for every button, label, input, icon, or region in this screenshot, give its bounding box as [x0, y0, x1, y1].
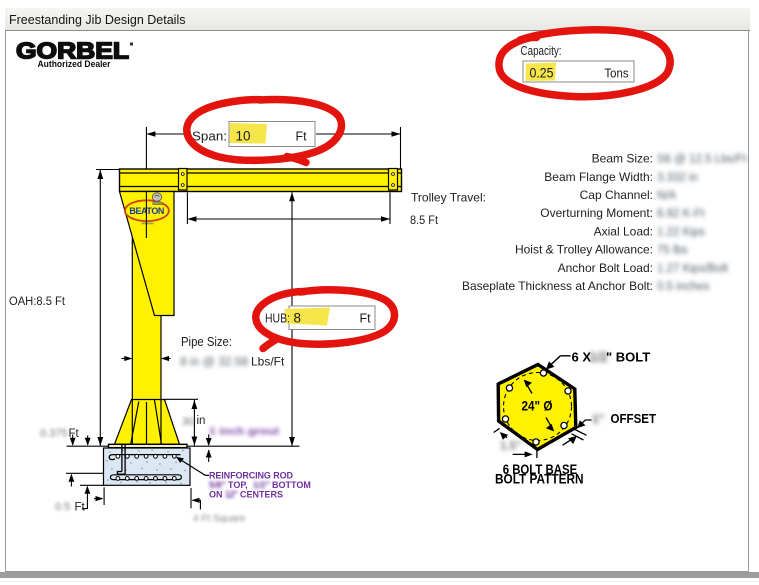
svg-text:OAH:8.5 Ft: OAH:8.5 Ft: [9, 296, 66, 308]
svg-text:24" Ø: 24" Ø: [522, 399, 553, 414]
svg-text:Pipe Size:: Pipe Size:: [181, 335, 232, 349]
svg-text:Anchor Bolt Load:: Anchor Bolt Load:: [558, 261, 653, 275]
svg-text:Beam Flange Width:: Beam Flange Width:: [544, 170, 653, 184]
svg-text:6.92 K-Ft: 6.92 K-Ft: [657, 208, 705, 220]
svg-text:Lbs/Ft: Lbs/Ft: [251, 355, 285, 369]
svg-text:Ft: Ft: [296, 130, 308, 144]
svg-text:HUB:: HUB:: [265, 312, 290, 326]
svg-text:0.375: 0.375: [40, 428, 68, 440]
svg-text:Ft: Ft: [75, 502, 86, 514]
svg-text:8.5 Ft: 8.5 Ft: [410, 213, 439, 227]
svg-text:Axial Load:: Axial Load:: [594, 225, 653, 239]
svg-text:BOTTOM: BOTTOM: [272, 480, 311, 490]
svg-text:Tons: Tons: [605, 67, 629, 81]
svg-text:4 Ft Square: 4 Ft Square: [193, 514, 246, 525]
svg-text:TOP,: TOP,: [228, 480, 248, 490]
svg-text:1/2": 1/2": [253, 480, 270, 490]
svg-text:1 inch grout: 1 inch grout: [209, 427, 280, 438]
svg-text:1": 1": [592, 412, 604, 426]
svg-text:Beam Size:: Beam Size:: [592, 152, 653, 166]
svg-text:REINFORCING ROD: REINFORCING ROD: [209, 471, 294, 481]
svg-text:BOLT PATTERN: BOLT PATTERN: [495, 472, 584, 487]
svg-text:8 in @ 32.58: 8 in @ 32.58: [180, 355, 249, 369]
svg-text:N/A: N/A: [657, 190, 677, 202]
svg-text:8: 8: [294, 311, 302, 326]
svg-text:in: in: [197, 415, 206, 427]
svg-text:S6 @ 12.5 Lbs/Ft: S6 @ 12.5 Lbs/Ft: [657, 154, 747, 166]
svg-text:1.27 Kips/Bolt: 1.27 Kips/Bolt: [657, 263, 729, 275]
svg-text:Baseplate Thickness at Anchor: Baseplate Thickness at Anchor Bolt:: [462, 279, 653, 293]
svg-text:1.22 Kips: 1.22 Kips: [657, 227, 705, 239]
svg-text:30: 30: [182, 416, 194, 428]
svg-text:Hoist & Trolley Allowance:: Hoist & Trolley Allowance:: [515, 243, 653, 257]
svg-text:0.5 inches: 0.5 inches: [657, 281, 710, 293]
svg-text:0.25: 0.25: [530, 66, 554, 81]
svg-text:Cap Channel:: Cap Channel:: [580, 188, 653, 202]
svg-text:Overturning Moment:: Overturning Moment:: [540, 206, 653, 220]
svg-text:1/2: 1/2: [589, 350, 608, 365]
svg-text:Ft: Ft: [360, 312, 372, 326]
svg-text:Capacity:: Capacity:: [521, 44, 562, 58]
svg-text:ON: ON: [209, 490, 223, 500]
svg-text:0.5: 0.5: [55, 501, 70, 513]
svg-text:10: 10: [236, 129, 251, 144]
svg-text:CENTERS: CENTERS: [240, 490, 283, 500]
svg-text:OFFSET: OFFSET: [611, 411, 657, 426]
svg-text:Trolley Travel:: Trolley Travel:: [411, 191, 486, 205]
svg-text:12": 12": [225, 490, 238, 500]
svg-text:" BOLT: " BOLT: [606, 350, 650, 365]
svg-text:5/8": 5/8": [209, 480, 226, 490]
svg-text:Authorized Dealer: Authorized Dealer: [38, 59, 111, 69]
svg-text:3.332 in: 3.332 in: [657, 172, 698, 184]
svg-text:1.5": 1.5": [500, 441, 521, 453]
svg-text:75 lbs: 75 lbs: [657, 245, 688, 257]
svg-text:Span:: Span:: [192, 130, 227, 144]
